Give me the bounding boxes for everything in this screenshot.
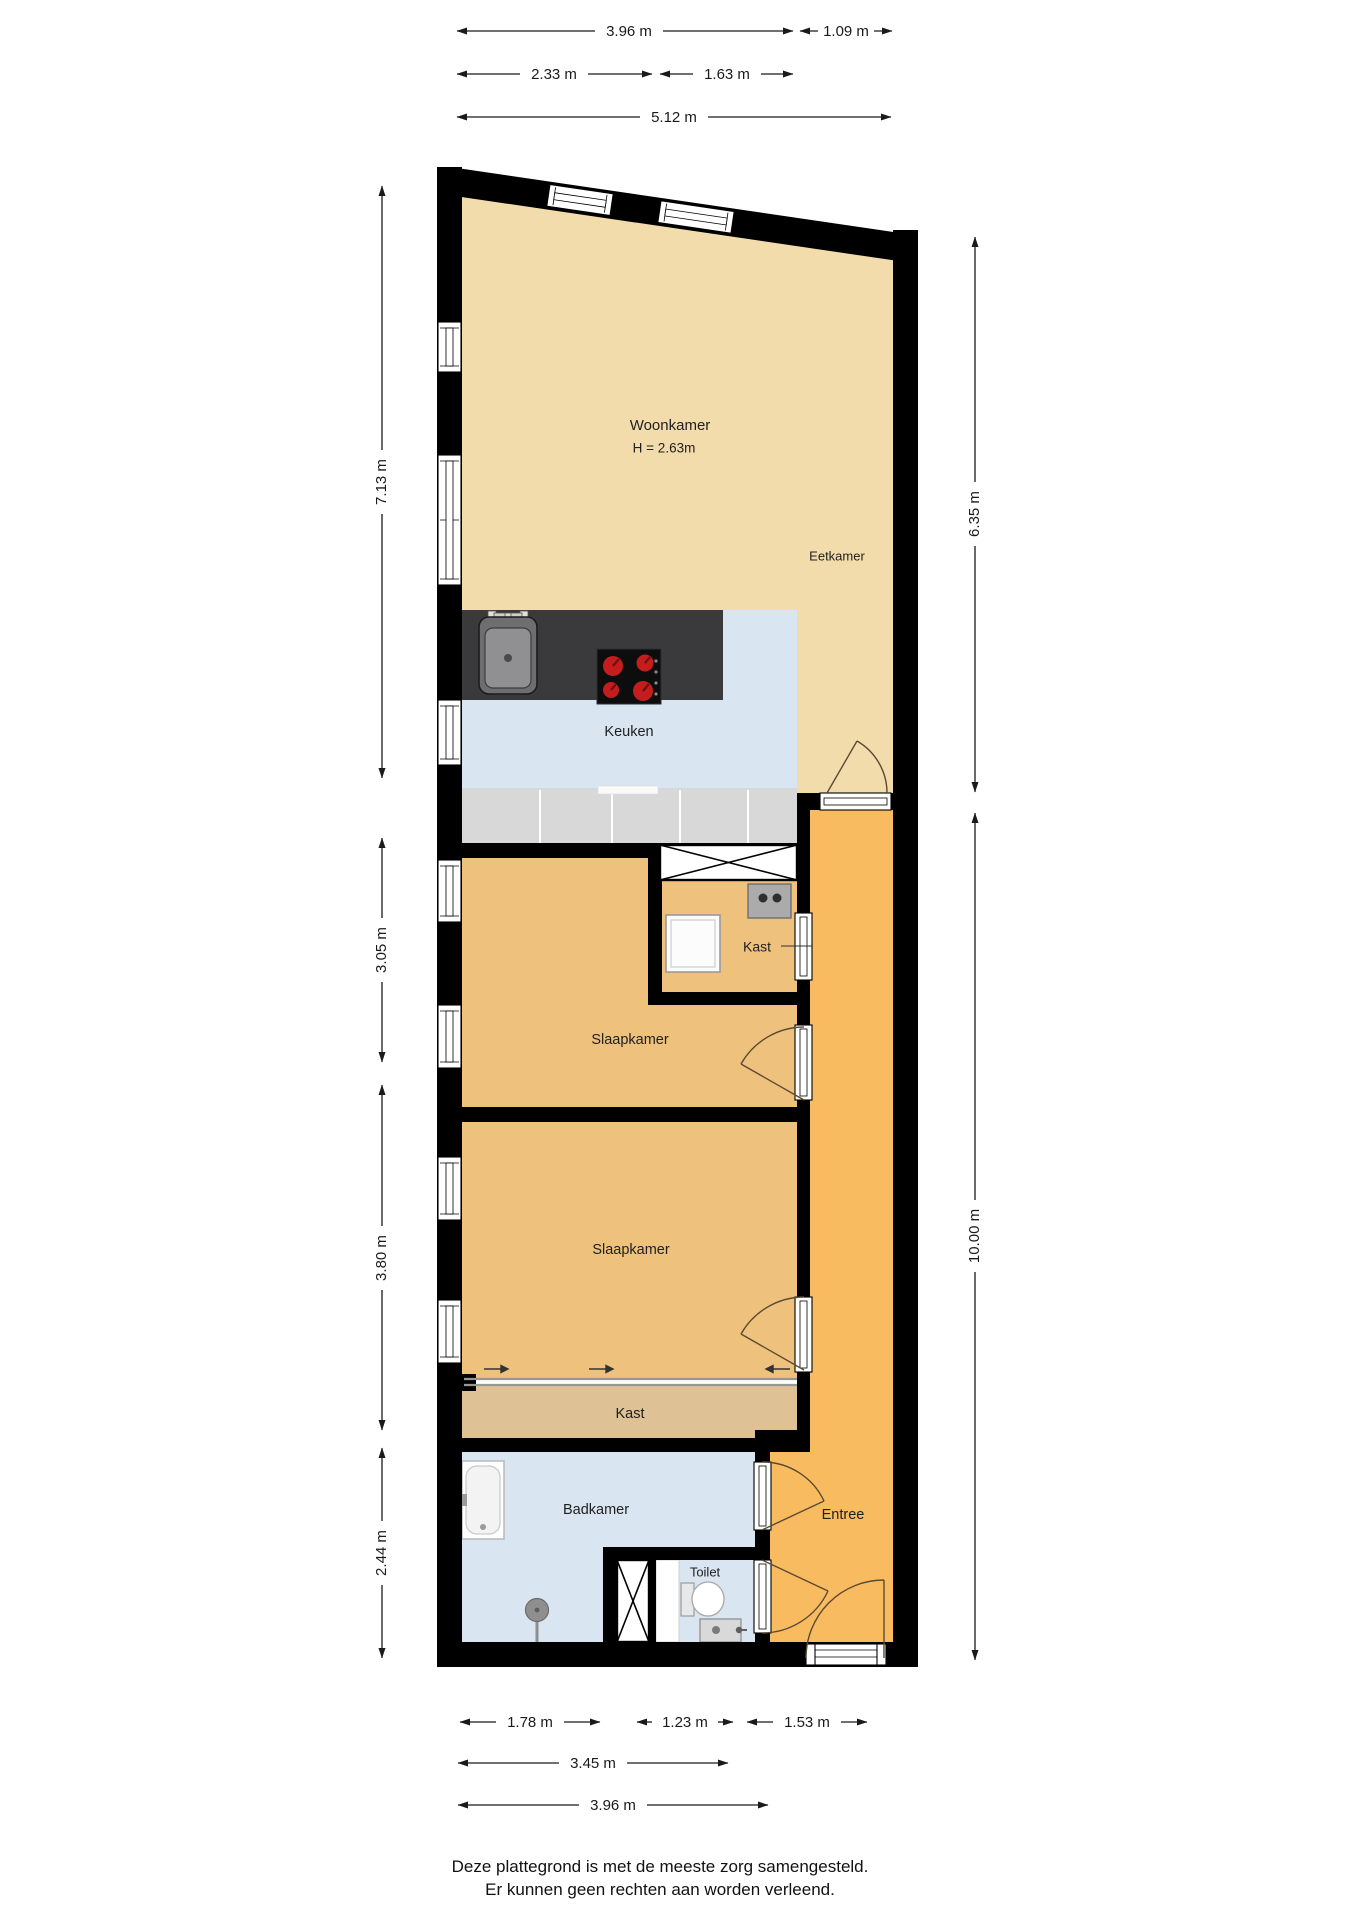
wall-toilet-top	[603, 1547, 770, 1560]
window-icon	[438, 1300, 461, 1363]
window-icon	[438, 700, 461, 765]
wall-kast1-bottom	[648, 992, 810, 1005]
floorplan-svg: Woonkamer H = 2.63m Eetkamer Keuken Kast…	[0, 0, 1358, 1920]
label-badkamer: Badkamer	[563, 1502, 629, 1518]
dim-396-top: 3.96 m	[606, 23, 652, 40]
cooktop-icon	[597, 649, 661, 704]
wall-entree-stub	[755, 1430, 810, 1452]
dim-396-bottom: 3.96 m	[590, 1797, 636, 1814]
toilet-partition	[656, 1560, 679, 1642]
dim-109-top: 1.09 m	[823, 23, 869, 40]
dimension-bottom-row3: 3.96 m	[458, 1797, 768, 1814]
label-slaapkamer2: Slaapkamer	[592, 1242, 670, 1258]
label-toilet: Toilet	[690, 1564, 721, 1579]
kitchen-lower-cabinets	[462, 788, 797, 843]
dim-512-top: 5.12 m	[651, 109, 697, 126]
label-kast1: Kast	[743, 939, 771, 955]
duct-shaft-1	[660, 845, 797, 880]
wall-right	[893, 230, 918, 1667]
window-icon	[438, 1005, 461, 1068]
dim-713-left: 7.13 m	[373, 459, 390, 505]
dimension-bottom-row2: 3.45 m	[458, 1755, 728, 1772]
dimension-right-column: 6.35 m 10.00 m	[966, 237, 983, 1660]
label-kast2: Kast	[615, 1406, 644, 1422]
toilet-sink-icon	[700, 1619, 747, 1642]
label-slaapkamer1: Slaapkamer	[591, 1032, 669, 1048]
wall-bedrooms-divider	[437, 1107, 810, 1122]
disclaimer-line1: Deze plattegrond is met de meeste zorg s…	[452, 1857, 869, 1876]
dimension-top-row3: 5.12 m	[457, 109, 891, 126]
duct-shaft-2	[617, 1560, 649, 1642]
dimension-top-row1: 3.96 m 1.09 m	[457, 23, 892, 40]
slide-track-stub	[462, 1374, 476, 1391]
dim-635-right: 6.35 m	[966, 491, 983, 537]
dimension-top-row2: 2.33 m 1.63 m	[457, 66, 793, 83]
window-icon	[438, 1157, 461, 1220]
dim-163-top: 1.63 m	[704, 66, 750, 83]
dim-123-bottom: 1.23 m	[662, 1714, 708, 1731]
label-entree: Entree	[822, 1507, 865, 1523]
washing-machine-icon	[666, 915, 720, 972]
floorplan-page: Woonkamer H = 2.63m Eetkamer Keuken Kast…	[0, 0, 1358, 1920]
window-icon	[438, 322, 461, 372]
wall-toilet-left-stub	[603, 1547, 617, 1642]
kitchen-sink-icon	[479, 611, 537, 694]
cabinet-handle	[598, 786, 658, 794]
dim-1000-right: 10.00 m	[966, 1209, 983, 1263]
dim-233-top: 2.33 m	[531, 66, 577, 83]
dimension-left-column: 7.13 m 3.05 m 3.80 m 2.44 m	[373, 186, 390, 1658]
bathtub-icon	[461, 1461, 504, 1539]
dim-305-left: 3.05 m	[373, 927, 390, 973]
wall-kast2-bottom	[437, 1438, 770, 1452]
boiler-icon	[748, 884, 791, 918]
window-icon	[438, 455, 461, 585]
disclaimer-line2: Er kunnen geen rechten aan worden verlee…	[485, 1880, 835, 1899]
dim-244-left: 2.44 m	[373, 1530, 390, 1576]
label-keuken: Keuken	[604, 724, 653, 740]
dim-178-bottom: 1.78 m	[507, 1714, 553, 1731]
label-eetkamer: Eetkamer	[809, 548, 865, 563]
label-woonkamer-height: H = 2.63m	[633, 441, 696, 456]
dim-345-bottom: 3.45 m	[570, 1755, 616, 1772]
dim-380-left: 3.80 m	[373, 1235, 390, 1281]
label-woonkamer: Woonkamer	[630, 417, 711, 434]
window-icon	[438, 860, 461, 922]
dim-153-bottom: 1.53 m	[784, 1714, 830, 1731]
dimension-bottom-row1: 1.78 m 1.23 m 1.53 m	[460, 1714, 867, 1731]
toilet-icon	[681, 1582, 724, 1616]
